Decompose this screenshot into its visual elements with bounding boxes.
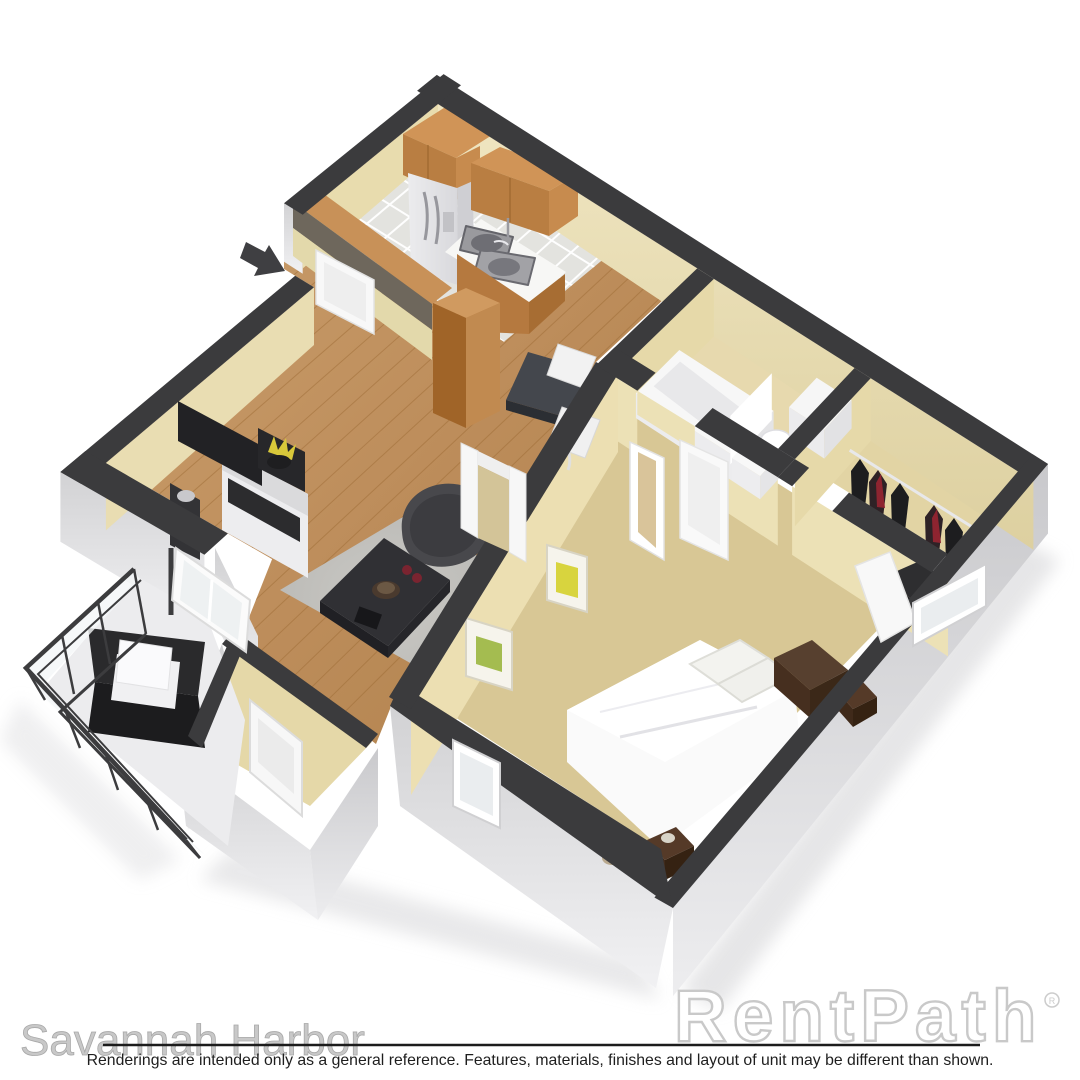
svg-text:R: R — [1049, 996, 1056, 1006]
svg-text:RentPath: RentPath — [674, 976, 1042, 1057]
